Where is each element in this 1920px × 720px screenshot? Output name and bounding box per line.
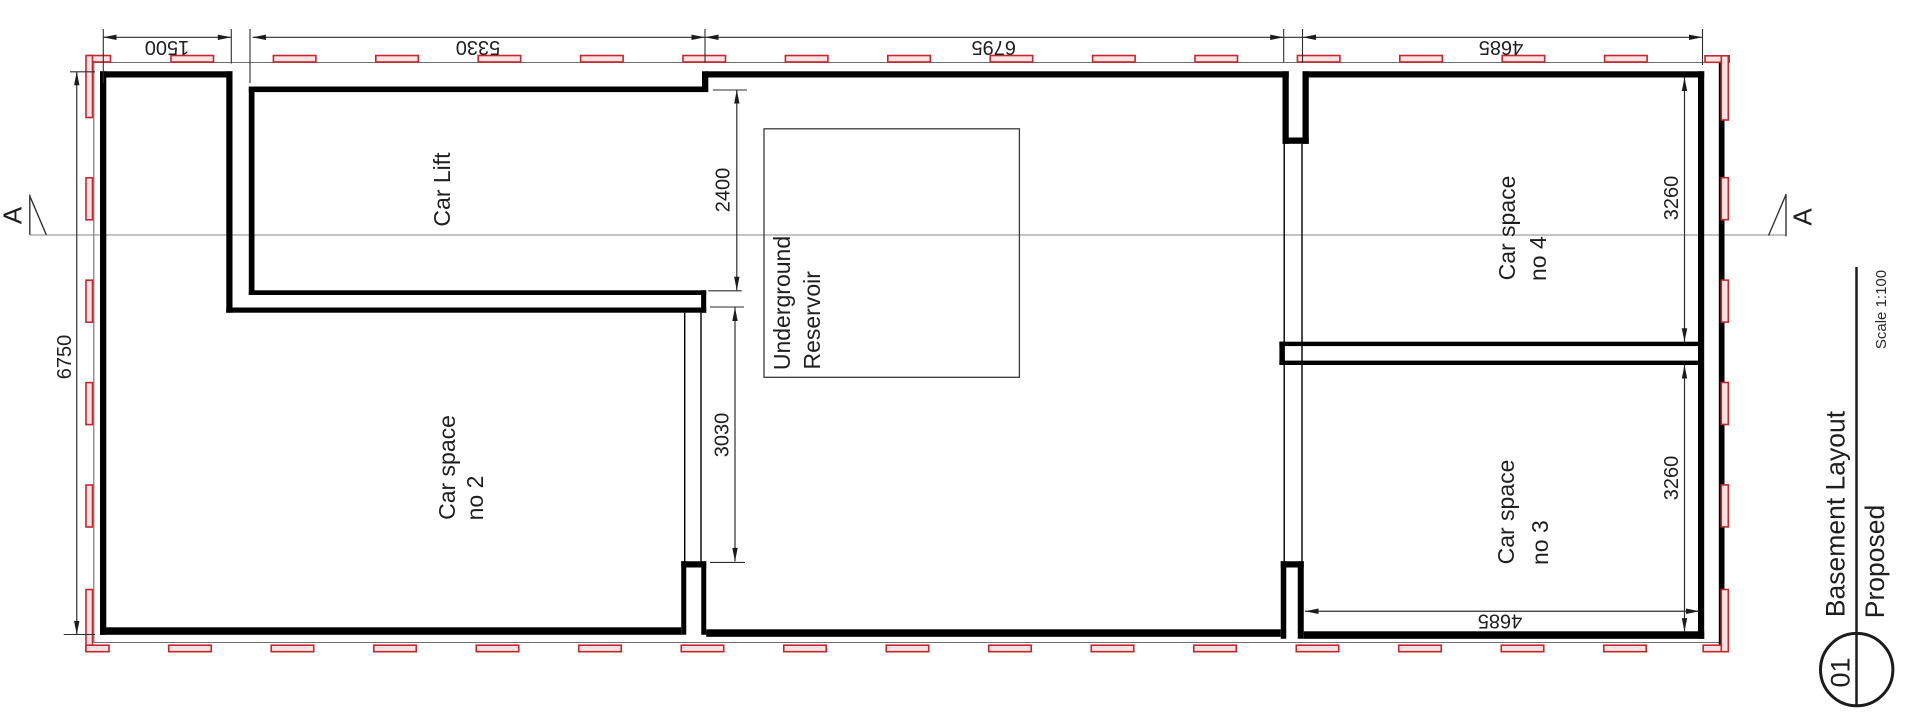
svg-text:no 2: no 2 [462,476,488,521]
svg-text:4685: 4685 [1478,610,1523,632]
svg-text:Car space: Car space [1494,176,1520,281]
svg-text:Underground: Underground [769,236,795,370]
svg-text:Scale 1:100: Scale 1:100 [1873,270,1890,349]
svg-text:6795: 6795 [971,36,1016,58]
svg-text:3260: 3260 [1661,456,1683,501]
svg-text:Reservoir: Reservoir [799,271,825,370]
svg-text:01: 01 [1826,657,1856,687]
svg-text:6750: 6750 [54,335,76,380]
svg-text:no 3: no 3 [1527,520,1553,565]
svg-text:1500: 1500 [145,36,190,58]
svg-text:no 4: no 4 [1525,236,1551,281]
svg-text:Proposed: Proposed [1860,505,1890,618]
svg-text:4685: 4685 [1479,36,1524,58]
svg-text:Car space: Car space [1493,460,1519,565]
svg-text:Basement Layout: Basement Layout [1821,410,1851,617]
svg-text:Car space: Car space [434,415,460,520]
svg-text:2400: 2400 [713,168,735,213]
svg-text:3030: 3030 [712,413,734,458]
svg-text:3260: 3260 [1661,176,1683,221]
svg-text:A: A [0,206,28,224]
svg-text:A: A [1788,208,1818,226]
svg-text:Car Lift: Car Lift [429,152,455,227]
svg-text:5330: 5330 [456,36,501,58]
